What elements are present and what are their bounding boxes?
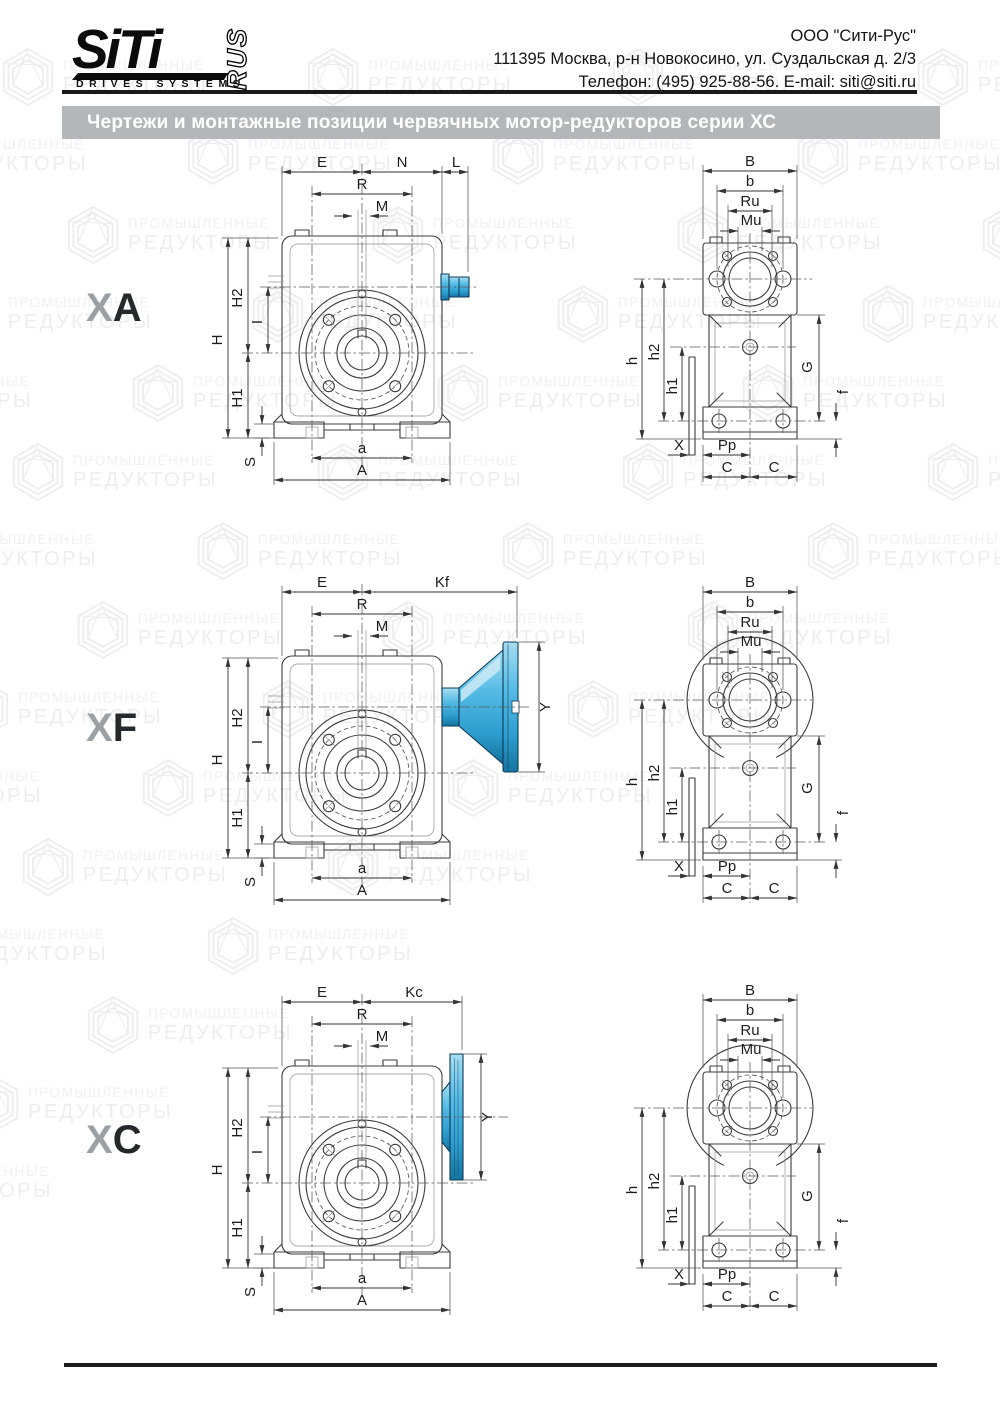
watermark-line2: РЕДУКТОРЫ: [0, 943, 108, 965]
xf-front-view: E Kf R M H H2 I H1 S a A Y: [212, 578, 557, 923]
watermark-line1: ПРОМЫШЛЕННЫЕ: [563, 532, 708, 548]
watermark-line1: ПРОМЫШЛЕННЫЕ: [0, 532, 98, 548]
dim-label-E: E: [317, 574, 327, 591]
variant-letter: F: [113, 706, 137, 750]
watermark: ПРОМЫШЛЕННЫЕ РЕДУКТОРЫ: [0, 1152, 53, 1214]
dim-label-B: B: [745, 153, 755, 170]
watermark: ПРОМЫШЛЕННЫЕ РЕДУКТОРЫ: [0, 757, 43, 819]
variant-label-xf: XF: [86, 708, 137, 748]
page-title-text: Чертежи и монтажные позиции червячных мо…: [87, 112, 776, 133]
xc-side-view: B b Ru Mu h h2 h1 G f X Pp C C: [606, 984, 906, 1329]
hexagon-logo-icon: [0, 283, 1, 345]
watermark-text: ПРОМЫШЛЕННЫЕ РЕДУКТОРЫ: [988, 453, 1000, 491]
watermark-line2: РЕДУКТОРЫ: [73, 469, 218, 491]
watermark: ПРОМЫШЛЕННЫЕ РЕДУКТОРЫ: [0, 678, 163, 740]
watermark-line1: ПРОМЫШЛЕННЫЕ: [83, 848, 228, 864]
watermark-line1: ПРОМЫШЛЕННЫЕ: [268, 927, 413, 943]
dim-label-I: I: [249, 320, 266, 324]
hexagon-logo-icon: [925, 441, 981, 503]
dim-label-S: S: [242, 1287, 259, 1297]
dim-label-M: M: [376, 1028, 389, 1045]
watermark-line1: ПРОМЫШЛЕННЫЕ: [988, 453, 1000, 469]
dim-label-G: G: [799, 1190, 816, 1202]
hexagon-logo-icon: [0, 678, 11, 740]
watermark-line1: ПРОМЫШЛЕННЫЕ: [0, 927, 108, 943]
watermark-line1: ПРОМЫШЛЕННЫЕ: [0, 769, 43, 785]
watermark-line1: ПРОМЫШЛЕННЫЕ: [73, 453, 218, 469]
hexagon-logo-icon: [555, 283, 611, 345]
dim-label-Y: Y: [537, 702, 554, 712]
dim-label-L: L: [452, 154, 460, 171]
dim-label-C-right: C: [769, 459, 780, 476]
watermark: ПРОМЫШЛЕННЫЕ РЕДУКТОРЫ: [805, 520, 1000, 582]
watermark-text: ПРОМЫШЛЕННЫЕ РЕДУКТОРЫ: [868, 532, 1000, 570]
dim-label-Kf: Kf: [435, 574, 450, 591]
watermark-line2: РЕДУКТОРЫ: [868, 548, 1000, 570]
dim-label-G: G: [799, 782, 816, 794]
watermark: ПРОМЫШЛЕННЫЕ РЕДУКТОРЫ: [305, 46, 513, 108]
dim-label-E: E: [317, 984, 327, 1001]
watermark-text: ПРОМЫШЛЕННЫЕ РЕДУКТОРЫ: [923, 295, 1000, 333]
watermark: ПРОМЫШЛЕННЫЕ РЕДУКТОРЫ: [0, 520, 98, 582]
watermark-line1: ПРОМЫШЛЕННЫЕ: [978, 58, 1000, 74]
dim-label-h2: h2: [646, 344, 663, 361]
watermark-line1: ПРОМЫШЛЕННЫЕ: [28, 1085, 173, 1101]
dim-label-h: h: [624, 1186, 641, 1194]
dim-label-R: R: [357, 596, 368, 613]
dim-label-h: h: [624, 778, 641, 786]
xa-front-view: E N L R M H H2 I H1 S a A: [212, 158, 557, 503]
hexagon-logo-icon: [805, 520, 861, 582]
dim-label-E: E: [317, 154, 327, 171]
hexagon-logo-icon: [195, 520, 251, 582]
footer-rule: [64, 1363, 937, 1367]
dim-label-R: R: [357, 1006, 368, 1023]
dim-label-M: M: [376, 198, 389, 215]
hexagon-logo-icon: [915, 46, 971, 108]
watermark-line2: РЕДУКТОРЫ: [988, 469, 1000, 491]
dim-label-h2: h2: [646, 765, 663, 782]
dim-label-B: B: [745, 574, 755, 591]
hexagon-logo-icon: [140, 757, 196, 819]
dim-label-Kc: Kc: [405, 984, 423, 1001]
logo-tagline: DRIVES SYSTEMS: [76, 78, 245, 90]
dim-label-Pp: Pp: [718, 1266, 736, 1283]
dim-label-A: A: [357, 882, 367, 899]
hexagon-logo-icon: [10, 441, 66, 503]
dim-label-f: f: [835, 1218, 852, 1223]
dim-label-X: X: [674, 1266, 684, 1283]
dim-label-Mu: Mu: [741, 1041, 762, 1058]
dim-label-H2: H2: [229, 708, 246, 727]
hexagon-logo-icon: [65, 204, 121, 266]
variant-prefix: X: [86, 1118, 113, 1162]
watermark: ПРОМЫШЛЕННЫЕ РЕДУКТОРЫ: [980, 204, 1000, 266]
watermark-text: ПРОМЫШЛЕННЫЕ РЕДУКТОРЫ: [73, 453, 218, 491]
dim-label-H1: H1: [229, 808, 246, 827]
watermark-line1: ПРОМЫШЛЕННЫЕ: [553, 137, 698, 153]
dim-label-Ru: Ru: [740, 193, 759, 210]
dim-label-Ru: Ru: [740, 614, 759, 631]
watermark-line2: РЕДУКТОРЫ: [258, 548, 403, 570]
watermark: ПРОМЫШЛЕННЫЕ РЕДУКТОРЫ: [195, 520, 403, 582]
dim-label-S: S: [242, 877, 259, 887]
dim-label-H: H: [209, 1165, 226, 1176]
dim-label-Mu: Mu: [741, 633, 762, 650]
watermark-line2: РЕДУКТОРЫ: [0, 390, 33, 412]
dim-label-R: R: [357, 176, 368, 193]
dim-label-a: a: [358, 440, 367, 457]
hexagon-logo-icon: [85, 994, 141, 1056]
dim-label-H1: H1: [229, 388, 246, 407]
watermark-line2: РЕДУКТОРЫ: [0, 1180, 53, 1202]
hexagon-logo-icon: [205, 915, 261, 977]
dim-label-h1: h1: [664, 799, 681, 816]
variant-letter: C: [113, 1118, 142, 1162]
dim-label-f: f: [835, 389, 852, 394]
watermark: ПРОМЫШЛЕННЫЕ РЕДУКТОРЫ: [500, 520, 708, 582]
logo-brand-text: SiTi: [72, 20, 165, 80]
hexagon-logo-icon: [75, 599, 131, 661]
watermark-line2: РЕДУКТОРЫ: [0, 785, 43, 807]
hexagon-logo-icon: [0, 46, 56, 108]
watermark-text: ПРОМЫШЛЕННЫЕ РЕДУКТОРЫ: [268, 927, 413, 965]
watermark-line2: РЕДУКТОРЫ: [83, 864, 228, 886]
watermark-line2: РЕДУКТОРЫ: [0, 548, 98, 570]
company-info: ООО "Сити-Рус" 111395 Москва, р-н Новоко…: [493, 25, 916, 94]
watermark: ПРОМЫШЛЕННЫЕ РЕДУКТОРЫ: [205, 915, 413, 977]
dim-label-b: b: [746, 594, 754, 611]
xc-front-view: E Kc R M H H2 I H1 S a A Y: [212, 988, 557, 1333]
variant-label-xc: XC: [86, 1120, 142, 1160]
variant-prefix: X: [86, 706, 113, 750]
watermark-line1: ПРОМЫШЛЕННЫЕ: [18, 690, 163, 706]
dim-label-X: X: [674, 437, 684, 454]
dim-label-Pp: Pp: [718, 858, 736, 875]
dim-label-I: I: [249, 740, 266, 744]
watermark-line1: ПРОМЫШЛЕННЫЕ: [0, 374, 33, 390]
xa-side-view: B b Ru Mu h h2 h1 G f X Pp C C: [606, 155, 906, 500]
dim-label-M: M: [376, 618, 389, 635]
dim-label-H: H: [209, 755, 226, 766]
variant-prefix: X: [86, 286, 113, 330]
watermark-line2: РЕДУКТОРЫ: [978, 74, 1000, 96]
dim-label-h1: h1: [664, 378, 681, 395]
watermark-line1: ПРОМЫШЛЕННЫЕ: [258, 532, 403, 548]
dim-label-f: f: [835, 810, 852, 815]
dim-label-H: H: [209, 335, 226, 346]
watermark: ПРОМЫШЛЕННЫЕ РЕДУКТОРЫ: [0, 915, 108, 977]
hexagon-logo-icon: [980, 204, 1000, 266]
watermark-text: ПРОМЫШЛЕННЫЕ РЕДУКТОРЫ: [258, 532, 403, 570]
watermark-text: ПРОМЫШЛЕННЫЕ РЕДУКТОРЫ: [0, 137, 88, 175]
watermark-line2: РЕДУКТОРЫ: [563, 548, 708, 570]
dim-label-h2: h2: [646, 1173, 663, 1190]
dim-label-H1: H1: [229, 1218, 246, 1237]
hexagon-logo-icon: [0, 1073, 21, 1135]
dim-label-Pp: Pp: [718, 437, 736, 454]
watermark-line2: РЕДУКТОРЫ: [923, 311, 1000, 333]
header-rule: [62, 90, 917, 94]
page-title: Чертежи и монтажные позиции червячных мо…: [62, 106, 940, 139]
watermark-text: ПРОМЫШЛЕННЫЕ РЕДУКТОРЫ: [83, 848, 228, 886]
watermark: ПРОМЫШЛЕННЫЕ РЕДУКТОРЫ: [915, 46, 1000, 108]
dim-label-H2: H2: [229, 1118, 246, 1137]
dim-label-a: a: [358, 1270, 367, 1287]
company-address: 111395 Москва, р-н Новокосино, ул. Сузда…: [493, 48, 916, 71]
watermark-text: ПРОМЫШЛЕННЫЕ РЕДУКТОРЫ: [0, 374, 33, 412]
watermark-line1: ПРОМЫШЛЕННЫЕ: [368, 58, 513, 74]
dim-label-I: I: [249, 1150, 266, 1154]
dim-label-G: G: [799, 361, 816, 373]
dim-label-h1: h1: [664, 1207, 681, 1224]
watermark: ПРОМЫШЛЕННЫЕ РЕДУКТОРЫ: [0, 362, 33, 424]
watermark: ПРОМЫШЛЕННЫЕ РЕДУКТОРЫ: [20, 836, 228, 898]
watermark-line2: РЕДУКТОРЫ: [0, 153, 88, 175]
watermark-text: ПРОМЫШЛЕННЫЕ РЕДУКТОРЫ: [0, 1164, 53, 1202]
watermark: ПРОМЫШЛЕННЫЕ РЕДУКТОРЫ: [925, 441, 1000, 503]
company-name: ООО "Сити-Рус": [493, 25, 916, 48]
dim-label-C-right: C: [769, 1288, 780, 1305]
variant-letter: A: [113, 286, 142, 330]
dim-label-a: a: [358, 860, 367, 877]
dim-label-H2: H2: [229, 288, 246, 307]
watermark-text: ПРОМЫШЛЕННЫЕ РЕДУКТОРЫ: [978, 58, 1000, 96]
watermark-line1: ПРОМЫШЛЕННЫЕ: [858, 137, 1000, 153]
dim-label-A: A: [357, 462, 367, 479]
hexagon-logo-icon: [500, 520, 556, 582]
watermark-text: ПРОМЫШЛЕННЫЕ РЕДУКТОРЫ: [0, 769, 43, 807]
watermark-line1: ПРОМЫШЛЕННЫЕ: [0, 1164, 53, 1180]
watermark-line1: ПРОМЫШЛЕННЫЕ: [868, 532, 1000, 548]
watermark-line1: ПРОМЫШЛЕННЫЕ: [0, 137, 88, 153]
dim-label-Mu: Mu: [741, 212, 762, 229]
catalog-page: ПРОМЫШЛЕННЫЕ РЕДУКТОРЫ ПРОМЫШЛЕННЫЕ РЕДУ…: [0, 0, 1000, 1414]
dim-label-b: b: [746, 173, 754, 190]
watermark-line1: ПРОМЫШЛЕННЫЕ: [248, 137, 393, 153]
dim-label-N: N: [397, 154, 408, 171]
watermark-text: ПРОМЫШЛЕННЫЕ РЕДУКТОРЫ: [563, 532, 708, 570]
watermark-line2: РЕДУКТОРЫ: [268, 943, 413, 965]
dim-label-Y: Y: [479, 1112, 496, 1122]
dim-label-B: B: [745, 982, 755, 999]
hexagon-logo-icon: [130, 362, 186, 424]
dim-label-C-left: C: [722, 1288, 733, 1305]
watermark: ПРОМЫШЛЕННЫЕ РЕДУКТОРЫ: [10, 441, 218, 503]
watermark-text: ПРОМЫШЛЕННЫЕ РЕДУКТОРЫ: [0, 927, 108, 965]
hexagon-logo-icon: [305, 46, 361, 108]
dim-label-C-left: C: [722, 459, 733, 476]
dim-label-C-left: C: [722, 880, 733, 897]
dim-label-C-right: C: [769, 880, 780, 897]
dim-label-h: h: [624, 357, 641, 365]
hexagon-logo-icon: [20, 836, 76, 898]
dim-label-Ru: Ru: [740, 1022, 759, 1039]
dim-label-b: b: [746, 1002, 754, 1019]
dim-label-X: X: [674, 858, 684, 875]
dim-label-A: A: [357, 1292, 367, 1309]
variant-label-xa: XA: [86, 288, 142, 328]
watermark-line1: ПРОМЫШЛЕННЫЕ: [923, 295, 1000, 311]
xf-side-view: B b Ru Mu h h2 h1 G f X Pp C C: [606, 576, 906, 921]
watermark-text: ПРОМЫШЛЕННЫЕ РЕДУКТОРЫ: [0, 532, 98, 570]
dim-label-S: S: [242, 457, 259, 467]
